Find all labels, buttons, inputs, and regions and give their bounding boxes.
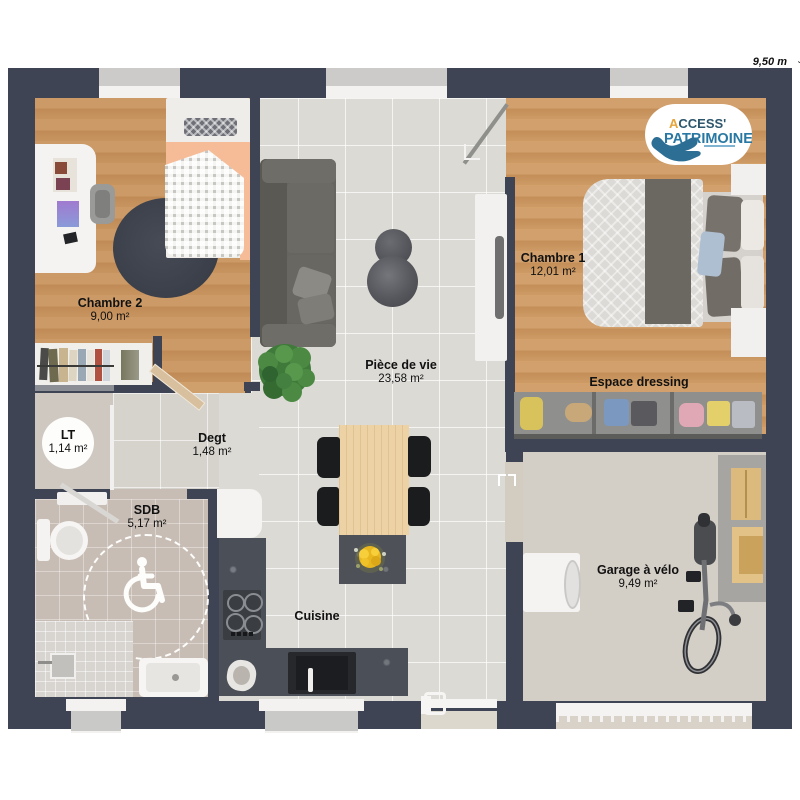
svg-text:ACCESS': ACCESS' [669,116,726,131]
svg-text:PATRIMOINE: PATRIMOINE [664,131,752,147]
